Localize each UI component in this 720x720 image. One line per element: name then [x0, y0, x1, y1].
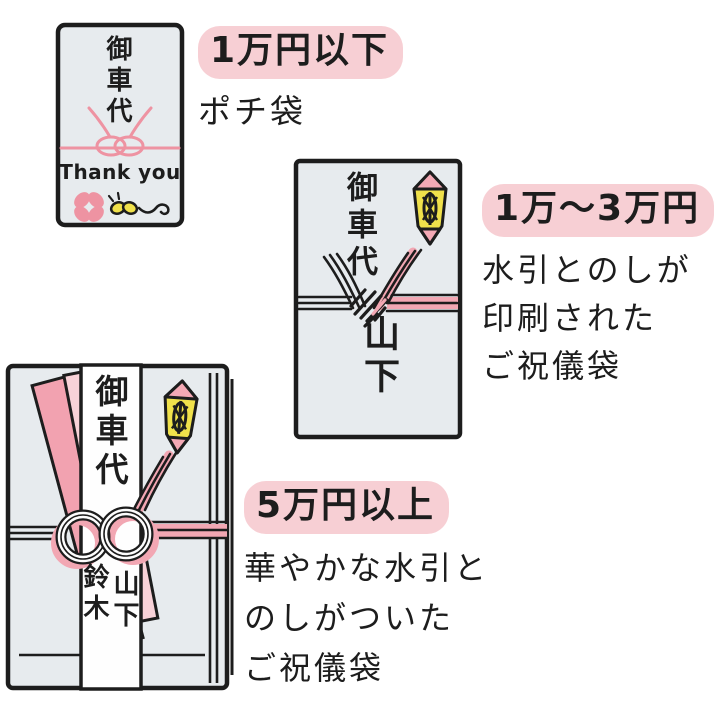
fancy-envelope-illustration: 御車代 鈴木 山下: [5, 363, 237, 691]
printed-envelope-illustration: 御車代 山下: [293, 158, 463, 440]
label-description: ポチ袋: [198, 88, 403, 136]
label-pochi: 1万円以下 ポチ袋: [198, 26, 403, 136]
label-printed: 1万〜3万円 水引とのしが 印刷された ご祝儀袋: [482, 184, 714, 390]
envelope-front-text: 御車代: [343, 171, 374, 282]
label-description: 水引とのしが 印刷された ご祝儀袋: [482, 246, 714, 390]
label-description: 華やかな水引と のしがついた ご祝儀袋: [244, 543, 489, 693]
label-fancy: 5万円以上 華やかな水引と のしがついた ご祝儀袋: [244, 481, 489, 693]
description-line: のしがついた: [244, 593, 489, 643]
illustration-canvas: 御車代 Thank you 1万円以下 ポチ袋: [0, 0, 720, 720]
description-line: 水引とのしが: [482, 246, 714, 294]
giver-name: 鈴木: [81, 563, 107, 625]
amount-heading: 1万〜3万円: [482, 184, 714, 237]
description-line: 印刷された: [482, 294, 714, 342]
envelope-front-text: 御車代: [93, 374, 126, 491]
description-line: 華やかな水引と: [244, 543, 489, 593]
description-line: ご祝儀袋: [482, 342, 714, 390]
pochi-envelope-illustration: 御車代 Thank you: [55, 22, 185, 228]
envelope-front-text: 御車代: [104, 35, 130, 128]
amount-heading: 5万円以上: [244, 481, 449, 534]
giver-name: 山下: [360, 315, 396, 399]
thank-you-message: Thank you: [55, 160, 185, 184]
giver-name: 山下: [111, 570, 137, 632]
description-line: ポチ袋: [198, 88, 403, 136]
amount-heading: 1万円以下: [198, 26, 403, 79]
description-line: ご祝儀袋: [244, 643, 489, 693]
